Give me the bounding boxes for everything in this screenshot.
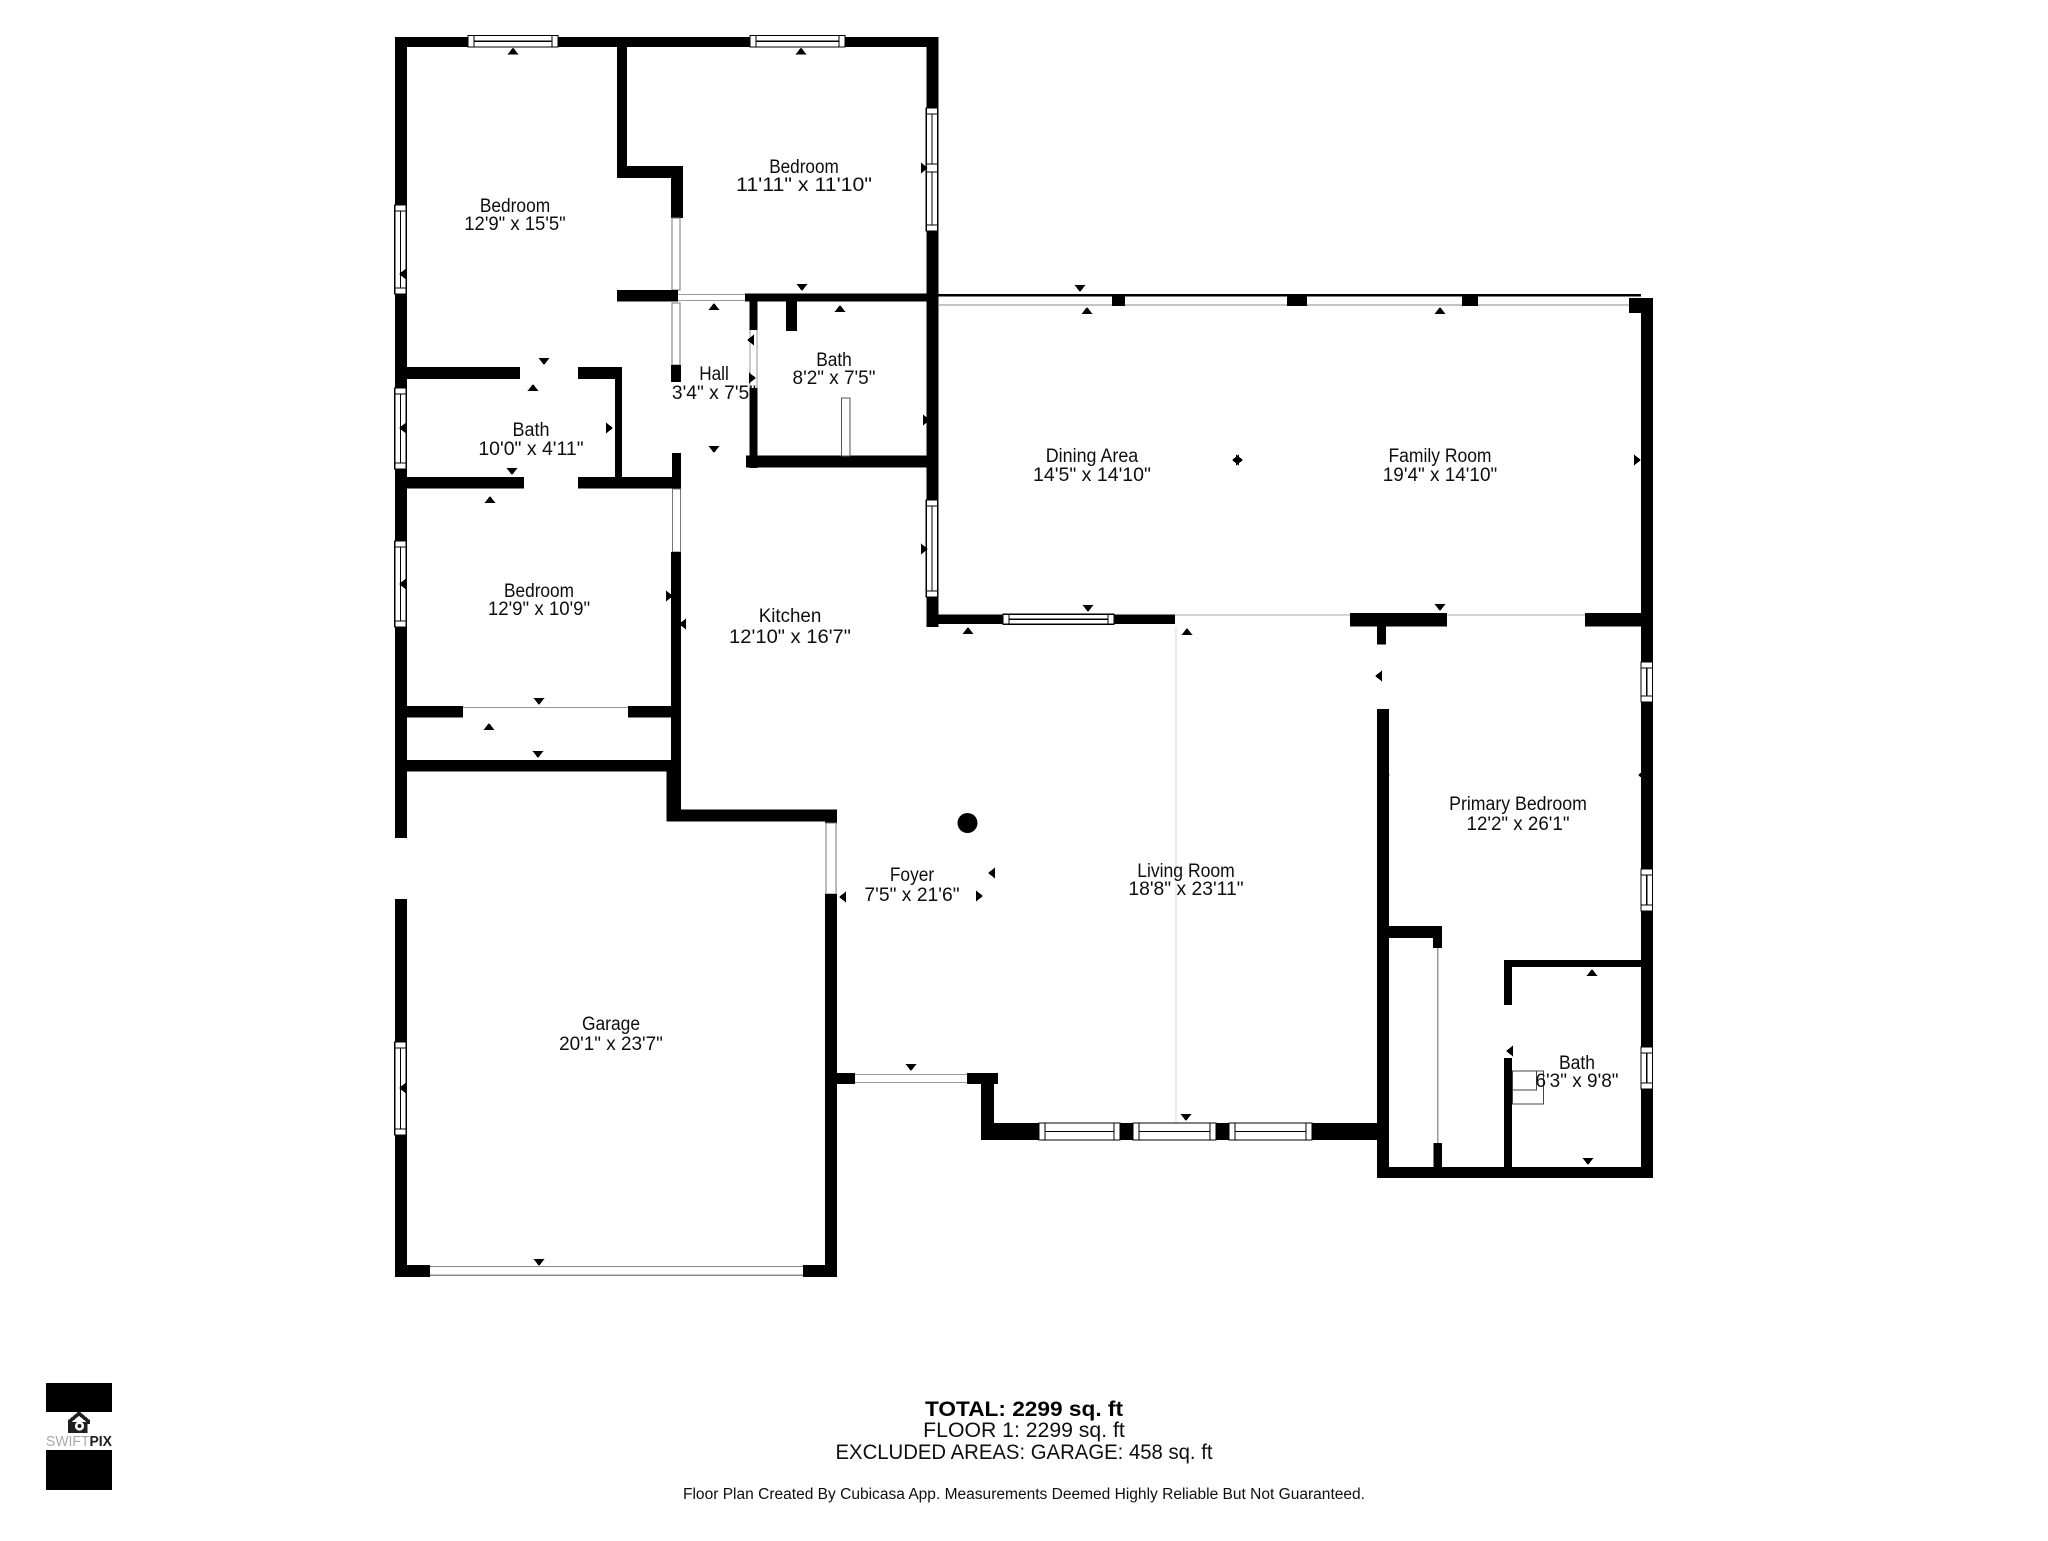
svg-text:3'4" x 7'5": 3'4" x 7'5" (672, 383, 756, 404)
svg-text:Foyer: Foyer (890, 865, 935, 886)
svg-text:Hall: Hall (699, 364, 729, 385)
svg-text:EXCLUDED AREAS: GARAGE: 458 sq: EXCLUDED AREAS: GARAGE: 458 sq. ft (836, 1441, 1213, 1464)
svg-text:SWIFTPIX: SWIFTPIX (46, 1434, 112, 1450)
svg-text:Kitchen: Kitchen (759, 606, 822, 627)
svg-text:Dining Area: Dining Area (1046, 446, 1139, 467)
svg-text:Garage: Garage (582, 1014, 640, 1035)
svg-text:6'3" x 9'8": 6'3" x 9'8" (1536, 1071, 1619, 1092)
svg-text:18'8" x 23'11": 18'8" x 23'11" (1128, 879, 1243, 900)
svg-text:Floor Plan Created By Cubicasa: Floor Plan Created By Cubicasa App. Meas… (683, 1486, 1365, 1503)
svg-text:19'4" x 14'10": 19'4" x 14'10" (1383, 465, 1498, 486)
svg-text:Bath: Bath (513, 420, 550, 441)
svg-text:7'5" x 21'6": 7'5" x 21'6" (864, 885, 959, 906)
svg-text:10'0" x 4'11": 10'0" x 4'11" (478, 439, 583, 460)
svg-text:Primary Bedroom: Primary Bedroom (1449, 794, 1587, 815)
svg-text:12'9" x 10'9": 12'9" x 10'9" (488, 599, 590, 620)
svg-text:TOTAL: 2299 sq. ft: TOTAL: 2299 sq. ft (925, 1397, 1123, 1421)
svg-text:8'2" x 7'5": 8'2" x 7'5" (793, 368, 876, 389)
svg-text:20'1" x 23'7": 20'1" x 23'7" (559, 1034, 663, 1055)
svg-text:14'5" x 14'10": 14'5" x 14'10" (1033, 465, 1151, 486)
svg-text:11'11" x 11'10": 11'11" x 11'10" (736, 175, 872, 196)
svg-text:12'2" x 26'1": 12'2" x 26'1" (1467, 814, 1570, 835)
svg-text:Family Room: Family Room (1389, 446, 1492, 467)
svg-text:12'9" x 15'5": 12'9" x 15'5" (464, 214, 566, 235)
svg-text:FLOOR 1: 2299 sq. ft: FLOOR 1: 2299 sq. ft (923, 1419, 1125, 1442)
svg-text:12'10" x 16'7": 12'10" x 16'7" (729, 627, 851, 648)
